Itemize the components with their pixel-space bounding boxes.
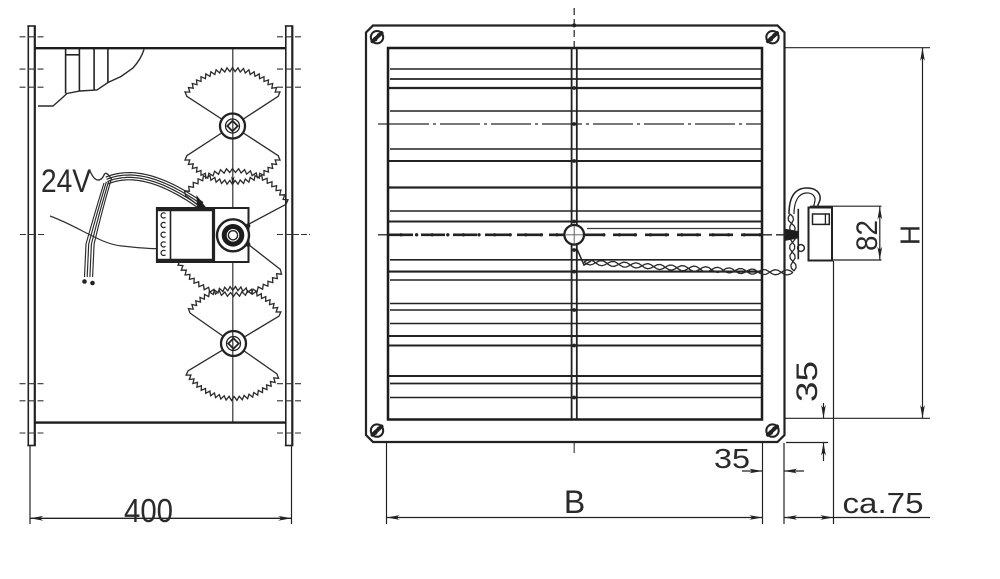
svg-text:B: B (564, 484, 585, 520)
svg-text:82: 82 (851, 220, 884, 251)
svg-text:24V: 24V (41, 163, 92, 199)
svg-text:400: 400 (124, 492, 173, 529)
svg-text:35: 35 (714, 443, 750, 474)
svg-text:ca.75: ca.75 (843, 488, 924, 520)
svg-text:35: 35 (791, 361, 824, 402)
svg-text:H: H (895, 225, 926, 245)
